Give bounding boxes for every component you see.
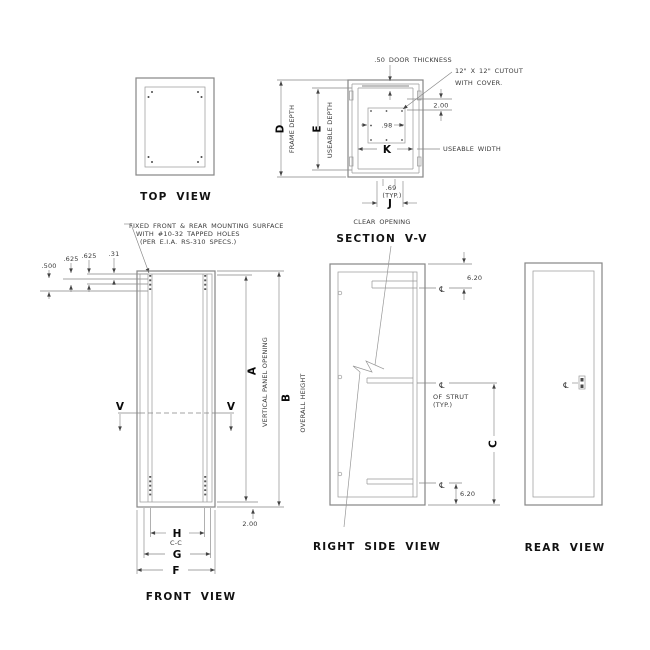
dim-31-label: .31 (109, 250, 120, 258)
dim-625b-label: .625 (81, 252, 96, 260)
cutout-note-line1: 12" X 12" CUTOUT (455, 67, 523, 75)
section-200-dimension: 2.00 (407, 89, 452, 121)
dim-cc-label: C-C (170, 539, 182, 547)
useable-width-dimension: K USEABLE WIDTH (358, 144, 501, 156)
latch-detail: ℄ (563, 376, 585, 390)
of-strut-label: OF STRUT (433, 393, 468, 401)
section-view-label: SECTION V-V (336, 233, 427, 245)
dim-letter-k: K (383, 144, 392, 156)
section-view: D FRAME DEPTH E USEABLE DEPTH (275, 56, 523, 245)
dim-69-typ: (TYP.) (382, 192, 401, 200)
section-arrow-v-left: V (116, 401, 125, 413)
top-view-label: TOP VIEW (140, 191, 212, 203)
mounting-note-line2: WITH #10-32 TAPPED HOLES (136, 230, 240, 238)
vertical-panel-opening-label: VERTICAL PANEL OPENING (261, 337, 269, 427)
door-thickness-label: .50 DOOR THICKNESS (374, 56, 452, 64)
front-view: FIXED FRONT & REAR MOUNTING SURFACE WITH… (40, 222, 307, 603)
mounting-note-line1: FIXED FRONT & REAR MOUNTING SURFACE (129, 222, 284, 230)
side-620-bottom-dimension: ℄ 6.20 (419, 477, 475, 504)
dim-500-label: .500 (41, 262, 56, 270)
centerline-symbol-top: ℄ (439, 285, 445, 294)
dim-letter-d: D (275, 124, 287, 133)
front-outline (137, 271, 215, 507)
useable-width-label: USEABLE WIDTH (443, 145, 501, 153)
dim-letter-b: B (281, 394, 293, 402)
dim-letter-g: G (173, 549, 182, 561)
dim-200-section: 2.00 (433, 102, 448, 110)
break-line (353, 361, 384, 372)
engineering-drawing-sheet: TOP VIEW D FRAME DEPTH E USEABLE DEPTH (0, 0, 650, 650)
cutout-note: 12" X 12" CUTOUT WITH COVER. (403, 67, 523, 109)
cutout-note-line2: WITH COVER. (455, 79, 502, 87)
dim-620-top-label: 6.20 (467, 274, 482, 282)
dim-620-bottom-label: 6.20 (460, 490, 475, 498)
useable-depth-dimension: E USEABLE DEPTH (312, 88, 353, 170)
rear-view: ℄ REAR VIEW (525, 263, 606, 554)
clear-opening-dimension: .69 (TYP.) J CLEAR OPENING (353, 179, 417, 226)
dim-98-label: .98 (382, 122, 393, 130)
right-side-view: ℄ 6.20 ℄ OF STRUT (TYP.) C ℄ 6.20 (313, 246, 500, 553)
front-view-label: FRONT VIEW (146, 591, 237, 603)
centerline-symbol-rear: ℄ (563, 381, 569, 390)
of-strut-typ: (TYP.) (433, 401, 452, 409)
hole-spacing-dimensions: .500 .625 .625 .31 (40, 250, 148, 299)
cabinet-drawing: TOP VIEW D FRAME DEPTH E USEABLE DEPTH (0, 0, 650, 650)
side-outline (330, 246, 425, 527)
dim-98: .98 (361, 122, 404, 130)
dim-letter-f: F (172, 565, 179, 577)
dim-200-front: 2.00 (242, 520, 257, 528)
mounting-note-line3: (PER E.I.A. RS-310 SPECS.) (140, 238, 236, 246)
frame-depth-label: FRAME DEPTH (288, 105, 296, 153)
rear-view-label: REAR VIEW (525, 542, 606, 554)
top-view: TOP VIEW (136, 78, 214, 203)
centerline-symbol-mid: ℄ (439, 381, 445, 390)
strut-centerline: ℄ OF STRUT (TYP.) (417, 377, 497, 409)
mounting-note: FIXED FRONT & REAR MOUNTING SURFACE WITH… (124, 222, 284, 273)
dim-letter-c: C (488, 440, 500, 448)
useable-depth-label: USEABLE DEPTH (326, 102, 334, 158)
front-200-dimension: 2.00 (242, 509, 257, 528)
top-view-corner-ticks (148, 91, 203, 163)
dim-625a-label: .625 (63, 255, 78, 263)
centerline-symbol-bottom: ℄ (439, 481, 445, 490)
right-side-view-label: RIGHT SIDE VIEW (313, 541, 441, 553)
vertical-panel-opening-dimension: A VERTICAL PANEL OPENING (217, 275, 269, 502)
dim-letter-e: E (312, 125, 324, 132)
section-arrow-v-right: V (227, 401, 236, 413)
dim-letter-a: A (247, 366, 259, 375)
width-dimensions: H C-C G F (137, 508, 215, 577)
clear-opening-label: CLEAR OPENING (353, 218, 410, 226)
side-620-top-dimension: ℄ 6.20 (419, 252, 482, 300)
overall-height-label: OVERALL HEIGHT (299, 373, 307, 432)
cutting-plane-vv: V V (116, 401, 236, 431)
dim-letter-j: J (387, 198, 392, 210)
